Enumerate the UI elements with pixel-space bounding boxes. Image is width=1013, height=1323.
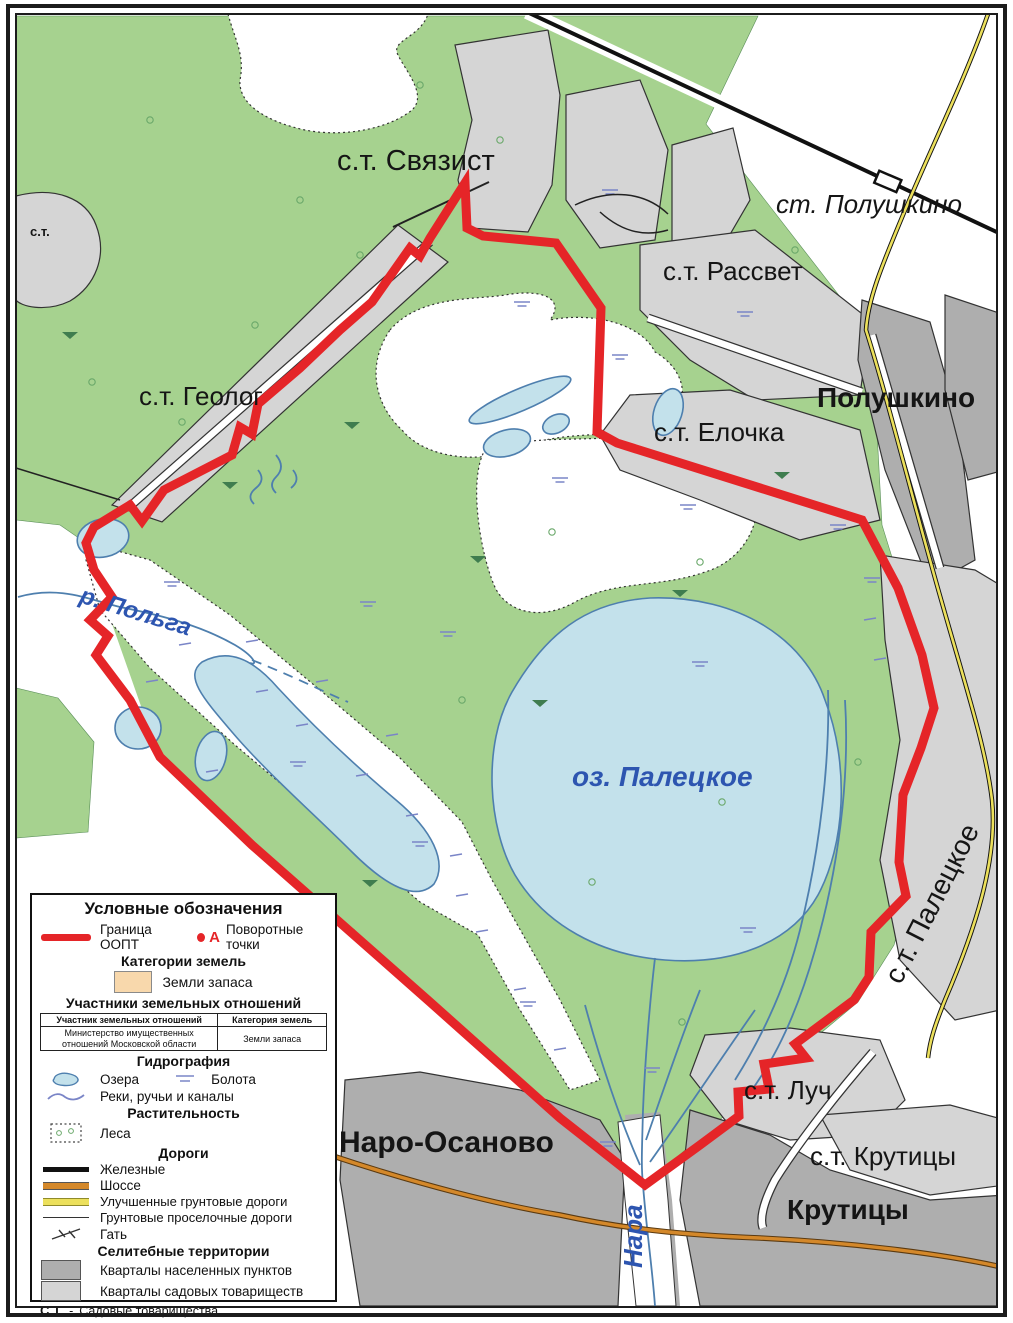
label-paletskoye-lake: оз. Палецкое <box>572 763 753 791</box>
legend-row-gat: Гать <box>40 1226 327 1242</box>
rail-label: Железные <box>100 1162 165 1177</box>
label-krutitsy-town: Крутицы <box>787 1196 909 1224</box>
participants-table: Участник земельных отношений Категория з… <box>40 1013 327 1051</box>
rivers-label: Реки, ручьи и каналы <box>100 1089 234 1104</box>
highway-line-icon <box>40 1182 92 1190</box>
zapas-swatch-icon <box>114 971 152 993</box>
turning-point-letter: А <box>209 929 220 946</box>
forest-label: Леса <box>100 1126 131 1141</box>
table-col2-header: Категория земель <box>218 1014 327 1027</box>
table-row1-col1: Министерство имущественных отношений Мос… <box>41 1027 218 1051</box>
label-yelochka: с.т. Елочка <box>654 419 784 445</box>
legend-row-boundary: Граница ООПТ А Поворотные точки <box>40 922 327 952</box>
legend-row-town-blocks: Кварталы населенных пунктов <box>40 1260 327 1280</box>
label-luch: с.т. Луч <box>744 1077 832 1103</box>
st-dash: - <box>69 1304 73 1318</box>
label-nara-river: Нара <box>620 1204 646 1268</box>
legend-categories-header: Категории земель <box>40 953 327 969</box>
legend-roads-header: Дороги <box>40 1145 327 1161</box>
legend-row-improved-dirt: Улучшенные грунтовые дороги <box>40 1194 327 1209</box>
label-rassvet: с.т. Рассвет <box>663 258 803 284</box>
legend-title: Условные обозначения <box>40 899 327 919</box>
st-abbr-label: Садовые товарищества <box>79 1304 218 1318</box>
label-naro-osanovo: Наро-Осаново <box>339 1128 554 1158</box>
table-col1-header: Участник земельных отношений <box>41 1014 218 1027</box>
label-geolog: с.т. Геолог <box>139 383 263 409</box>
label-polushkino-station: ст. Полушкино <box>776 191 962 217</box>
highway-label: Шоссе <box>100 1178 141 1193</box>
improved-dirt-line-icon <box>40 1198 92 1206</box>
legend-box: Условные обозначения Граница ООПТ А Пово… <box>30 893 337 1302</box>
town-blocks-swatch-icon <box>40 1260 92 1280</box>
turning-point-dot-icon <box>197 933 205 942</box>
gat-icon <box>40 1226 92 1242</box>
dirt-label: Грунтовые проселочные дороги <box>100 1210 292 1225</box>
legend-row-rivers: Реки, ручьи и каналы <box>40 1089 327 1104</box>
legend-row-zapas: Земли запаса <box>40 971 327 993</box>
legend-settlement-header: Селитебные территории <box>40 1243 327 1259</box>
label-svyazist: с.т. Связист <box>337 147 495 176</box>
label-st-small: с.т. <box>30 225 50 238</box>
st-abbr: С.Т. <box>40 1303 63 1318</box>
legend-row-garden-blocks: Кварталы садовых товариществ <box>40 1281 327 1301</box>
lakes-label: Озера <box>100 1072 139 1087</box>
boundary-label: Граница ООПТ <box>100 922 183 952</box>
town-blocks-label: Кварталы населенных пунктов <box>100 1263 292 1278</box>
label-krutitsy-st: с.т. Крутицы <box>810 1143 956 1169</box>
legend-row-rail: Железные <box>40 1162 327 1177</box>
legend-vegetation-header: Растительность <box>40 1105 327 1121</box>
garden-blocks-swatch-icon <box>40 1281 92 1301</box>
legend-row-lakes: Озера Болота <box>40 1070 327 1088</box>
rail-line-icon <box>40 1167 92 1172</box>
legend-hydrography-header: Гидрография <box>40 1053 327 1069</box>
legend-row-st-abbr: С.Т. - Садовые товарищества <box>40 1303 327 1318</box>
table-row1-col2: Земли запаса <box>218 1027 327 1051</box>
improved-dirt-label: Улучшенные грунтовые дороги <box>100 1194 287 1209</box>
swamp-icon <box>165 1074 205 1084</box>
zapas-label: Земли запаса <box>162 974 252 990</box>
legend-row-forest: Леса <box>40 1122 327 1144</box>
river-icon <box>40 1091 92 1103</box>
legend-participants-header: Участники земельных отношений <box>40 995 327 1011</box>
garden-blocks-label: Кварталы садовых товариществ <box>100 1284 303 1299</box>
gat-label: Гать <box>100 1227 127 1242</box>
dirt-line-icon <box>40 1217 92 1219</box>
swamps-label: Болота <box>211 1072 256 1087</box>
legend-row-highway: Шоссе <box>40 1178 327 1193</box>
legend-row-dirt: Грунтовые проселочные дороги <box>40 1210 327 1225</box>
turning-points-label: Поворотные точки <box>226 922 327 952</box>
lake-icon <box>40 1070 92 1088</box>
forest-icon <box>40 1122 92 1144</box>
label-polushkino-town: Полушкино <box>817 384 975 412</box>
map-page: с.т. Связист ст. Полушкино с.т. Рассвет … <box>0 0 1013 1323</box>
boundary-line-icon <box>40 934 92 941</box>
